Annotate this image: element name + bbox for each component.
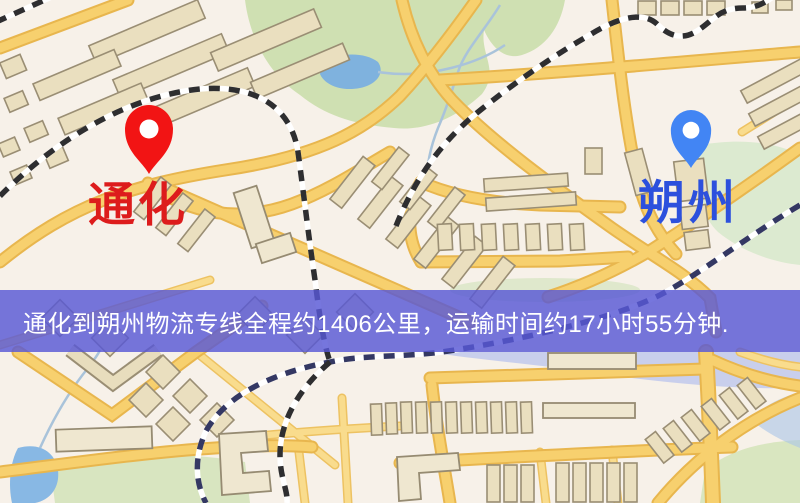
route-info-banner: 通化到朔州物流专线全程约1406公里，运输时间约17小时55分钟. (0, 290, 800, 352)
destination-pin-hole (683, 122, 700, 139)
destination-city-label: 朔州 (638, 178, 738, 230)
origin-pin-hole (140, 120, 159, 139)
map-canvas: 通化 朔州 (0, 0, 800, 503)
origin-city-label: 通化 (88, 180, 188, 232)
map-screenshot: 通化 朔州 通化到朔州物流专线全程约1406公里，运输时间约17小时55分钟. (0, 0, 800, 503)
route-info-text: 通化到朔州物流专线全程约1406公里，运输时间约17小时55分钟. (23, 304, 729, 339)
